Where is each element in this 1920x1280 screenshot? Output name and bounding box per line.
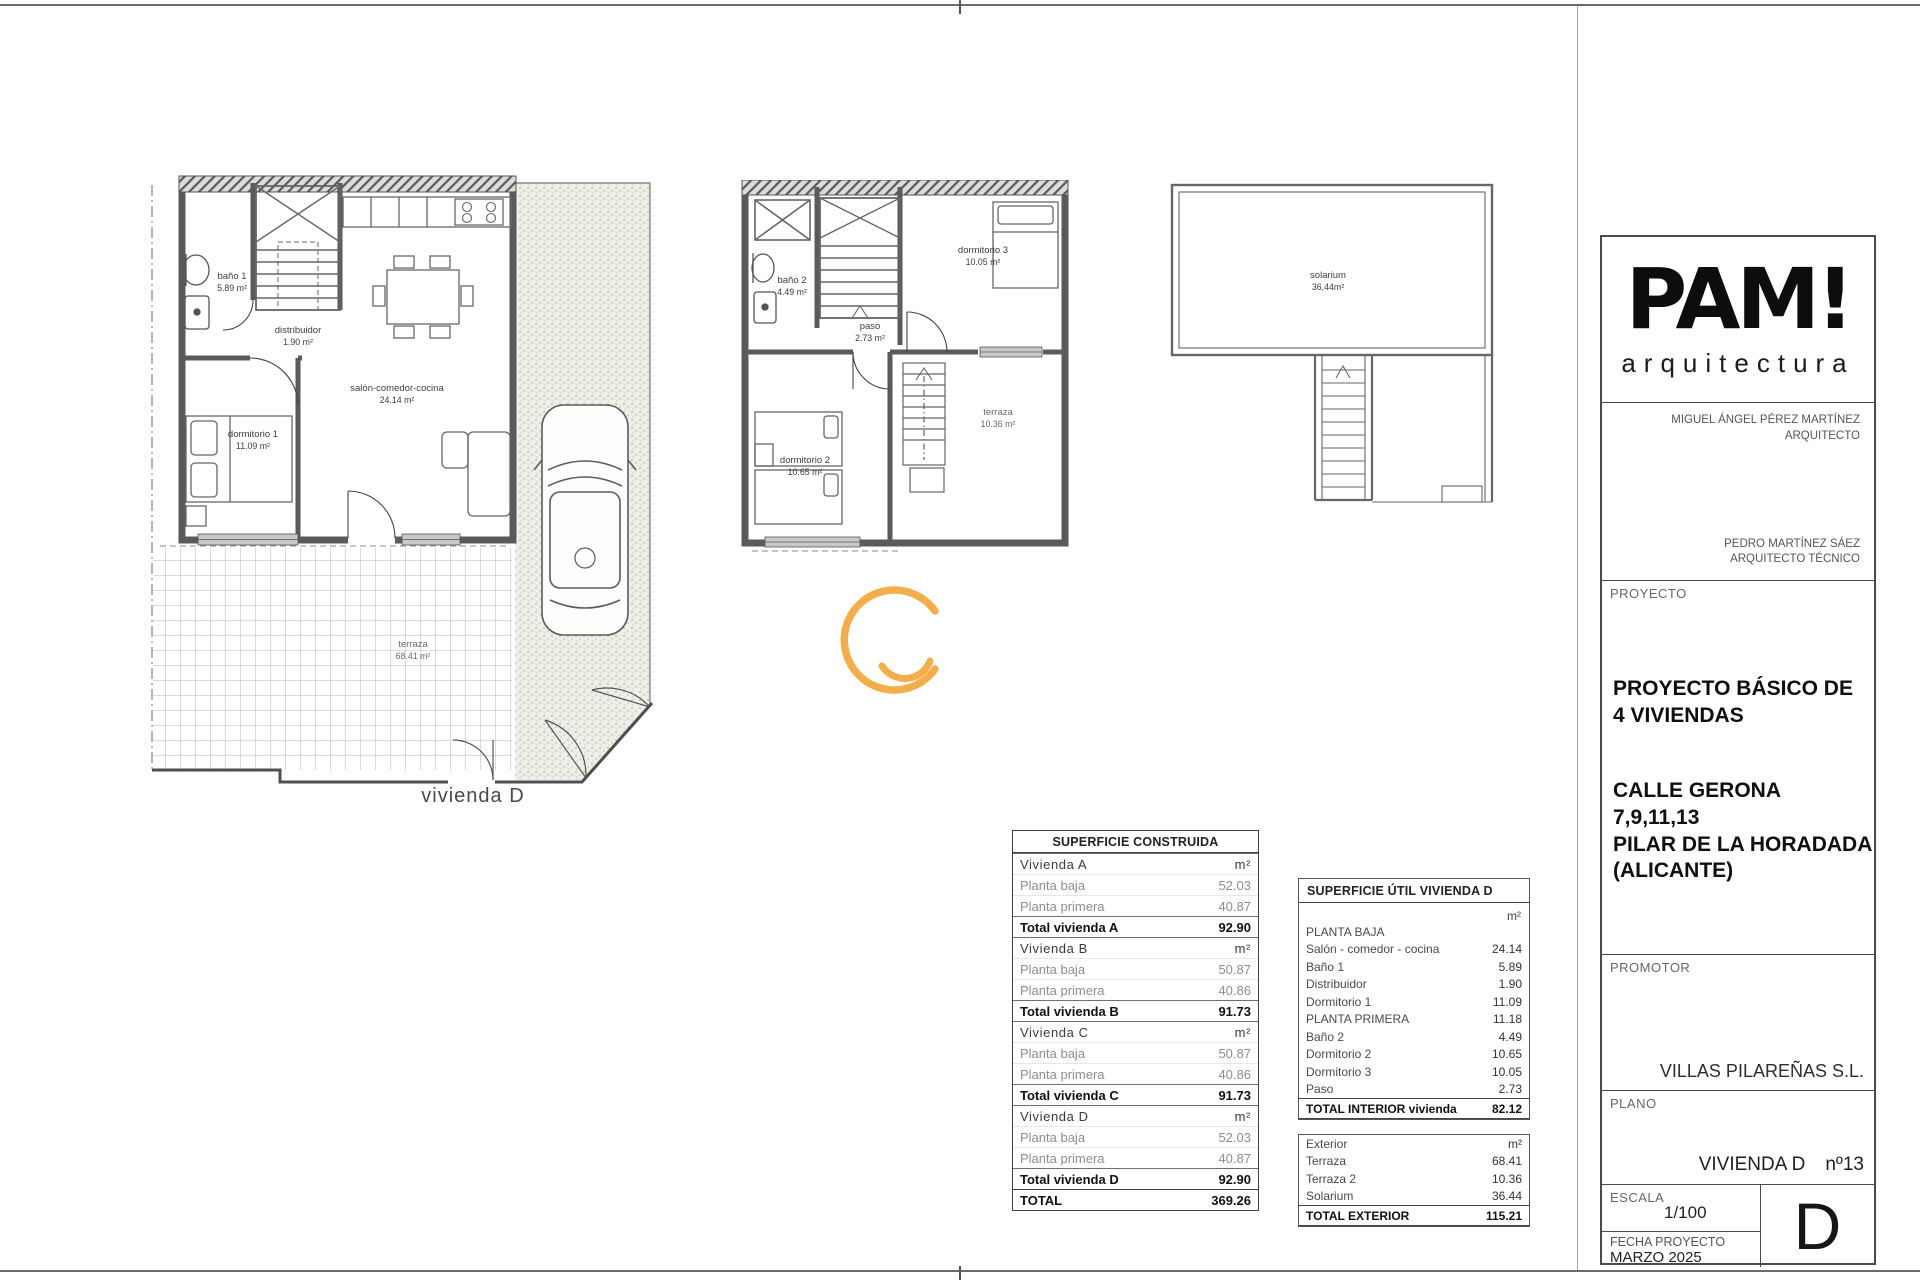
room-area: 68.41 m² [396,651,431,661]
escala-cell: ESCALA 1/100 [1602,1185,1760,1231]
room-area: 10.05 m² [966,257,1001,267]
construida-rows: Vivienda Am²Planta baja52.03Planta prime… [1013,853,1258,1210]
table-row: Total vivienda B91.73 [1013,1000,1258,1021]
table-row: PLANTA PRIMERA11.18 [1299,1011,1529,1029]
table-title: SUPERFICIE CONSTRUIDA [1013,831,1258,853]
facade-wall-hatch [179,176,516,192]
sheet-letter-cell: D [1760,1185,1874,1267]
plano-section: PLANO VIVIENDA Dnº13 [1602,1090,1874,1184]
sheet-letter: D [1794,1188,1842,1264]
bottom-center-fold-tick [959,1266,961,1280]
fecha-value: MARZO 2025 [1610,1249,1702,1266]
exterior-rows: Exteriorm²Terraza68.41Terraza 210.36Sola… [1299,1135,1529,1226]
table-row: Planta primera40.86 [1013,979,1258,1000]
plano-name: VIVIENDA Dnº13 [1699,1154,1864,1176]
room-label: dormitorio 3 [958,245,1008,256]
room-label: terraza [983,407,1013,418]
table-row: Planta baja52.03 [1013,1126,1258,1147]
util-rows: PLANTA BAJASalón - comedor - cocina24.14… [1299,923,1529,1119]
table-title: SUPERFICIE ÚTIL VIVIENDA D [1299,879,1529,903]
roof-edge [1372,355,1492,502]
unit-label: m² [1299,903,1529,923]
room-area: 5.89 m² [217,283,247,293]
table-row: Terraza68.41 [1299,1153,1529,1171]
table-row: Exteriorm² [1299,1135,1529,1153]
table-row: PLANTA BAJA [1299,923,1529,941]
escala-value: 1/100 [1664,1203,1707,1223]
proyecto-section: PROYECTO PROYECTO BÁSICO DE 4 VIVIENDAS … [1602,580,1874,954]
table-row: Solarium36.44 [1299,1188,1529,1206]
table-row: Dormitorio 310.05 [1299,1063,1529,1081]
table-row: TOTAL EXTERIOR115.21 [1299,1205,1529,1226]
room-area: 4.49 m² [777,287,807,297]
room-label: distribuidor [275,325,321,336]
escala-label: ESCALA [1610,1190,1664,1205]
room-label: salón-comedor-cocina [350,383,444,394]
terrace-tiles [153,548,512,770]
watermark-logo-icon [830,578,965,713]
table-row: Planta primera40.86 [1013,1063,1258,1084]
room-label: baño 2 [777,275,806,286]
table-row: Total vivienda D92.90 [1013,1168,1258,1189]
table-row: Planta primera40.87 [1013,895,1258,916]
logo-subtitle: arquitectura [1621,348,1854,379]
table-row: Planta baja50.87 [1013,1042,1258,1063]
table-row: Vivienda Cm² [1013,1021,1258,1042]
first-floor-plan: baño 2 4.49 m² paso 2.73 m² dormitorio 3… [740,180,1080,555]
table-row: Vivienda Bm² [1013,937,1258,958]
plan-caption: vivienda D [421,785,524,807]
room-area: 10.36 m² [981,419,1016,429]
pam-logo: PAM! [1626,260,1851,340]
room-area: 24.14 m² [380,395,415,405]
table-row: Terraza 210.36 [1299,1170,1529,1188]
table-row: Planta baja50.87 [1013,958,1258,979]
logo-section: PAM! arquitectura [1602,237,1874,402]
promotor-name: VILLAS PILAREÑAS S.L. [1660,1061,1864,1082]
table-row: Planta primera40.87 [1013,1147,1258,1168]
room-area: 10.65 m² [788,467,823,477]
room-area: 2.73 m² [855,333,885,343]
room-label: terraza [398,639,428,650]
plano-label: PLANO [1610,1096,1657,1111]
room-label: dormitorio 2 [780,455,830,466]
room-label: paso [860,321,881,332]
ground-floor-plan: baño 1 5.89 m² distribuidor 1.90 m² saló… [150,170,670,815]
table-row: TOTAL INTERIOR vivienda82.12 [1299,1098,1529,1119]
table-row: Dormitorio 210.65 [1299,1046,1529,1064]
fecha-label: FECHA PROYECTO [1610,1235,1725,1249]
promotor-label: PROMOTOR [1610,960,1690,975]
car-icon [534,405,636,635]
table-row: TOTAL369.26 [1013,1189,1258,1210]
fecha-cell: FECHA PROYECTO MARZO 2025 [1602,1231,1760,1267]
room-area: 36,44m² [1312,282,1344,292]
title-block-fold-line [1577,6,1578,1270]
table-row: Baño 15.89 [1299,958,1529,976]
facade-wall-hatch [742,180,1068,195]
drawing-sheet: baño 1 5.89 m² distribuidor 1.90 m² saló… [0,0,1920,1280]
roof-staircase [1315,355,1372,500]
table-row: Planta baja52.03 [1013,874,1258,895]
titleblock-bottom-row: ESCALA 1/100 FECHA PROYECTO MARZO 2025 D [1602,1184,1874,1267]
table-row: Salón - comedor - cocina24.14 [1299,941,1529,959]
roof-plan: solarium 36,44m² [1160,180,1500,510]
proyecto-label: PROYECTO [1610,586,1687,601]
project-title: PROYECTO BÁSICO DE 4 VIVIENDAS [1602,676,1874,730]
table-row: Total vivienda A92.90 [1013,916,1258,937]
table-row: Dormitorio 111.09 [1299,993,1529,1011]
project-address: CALLE GERONA 7,9,11,13 PILAR DE LA HORAD… [1602,778,1874,886]
room-label: dormitorio 1 [228,429,278,440]
table-row: Total vivienda C91.73 [1013,1084,1258,1105]
table-row: Vivienda Am² [1013,853,1258,874]
table-row: Baño 24.49 [1299,1028,1529,1046]
building-outline [182,183,513,540]
architect-2: PEDRO MARTÍNEZ SÁEZ ARQUITECTO TÉCNICO [1616,537,1860,568]
table-row: Vivienda Dm² [1013,1105,1258,1126]
room-label: solarium [1310,270,1346,281]
util-interior-box: SUPERFICIE ÚTIL VIVIENDA D m² PLANTA BAJ… [1298,878,1530,1120]
table-row: Paso2.73 [1299,1081,1529,1099]
util-exterior-box: Exteriorm²Terraza68.41Terraza 210.36Sola… [1298,1134,1530,1227]
room-label: baño 1 [217,271,246,282]
table-row: Distribuidor1.90 [1299,976,1529,994]
top-center-fold-tick [959,0,961,14]
superficie-construida-table: SUPERFICIE CONSTRUIDA Vivienda Am²Planta… [1012,830,1259,1211]
room-area: 1.90 m² [283,337,313,347]
title-block: PAM! arquitectura MIGUEL ÁNGEL PÉREZ MAR… [1600,235,1876,1265]
room-area: 11.09 m² [236,441,270,451]
architect-1: MIGUEL ÁNGEL PÉREZ MARTÍNEZ ARQUITECTO [1616,413,1860,444]
superficie-util-table: SUPERFICIE ÚTIL VIVIENDA D m² PLANTA BAJ… [1298,878,1530,1227]
promotor-section: PROMOTOR VILLAS PILAREÑAS S.L. [1602,954,1874,1090]
architects-section: MIGUEL ÁNGEL PÉREZ MARTÍNEZ ARQUITECTO P… [1602,402,1874,580]
